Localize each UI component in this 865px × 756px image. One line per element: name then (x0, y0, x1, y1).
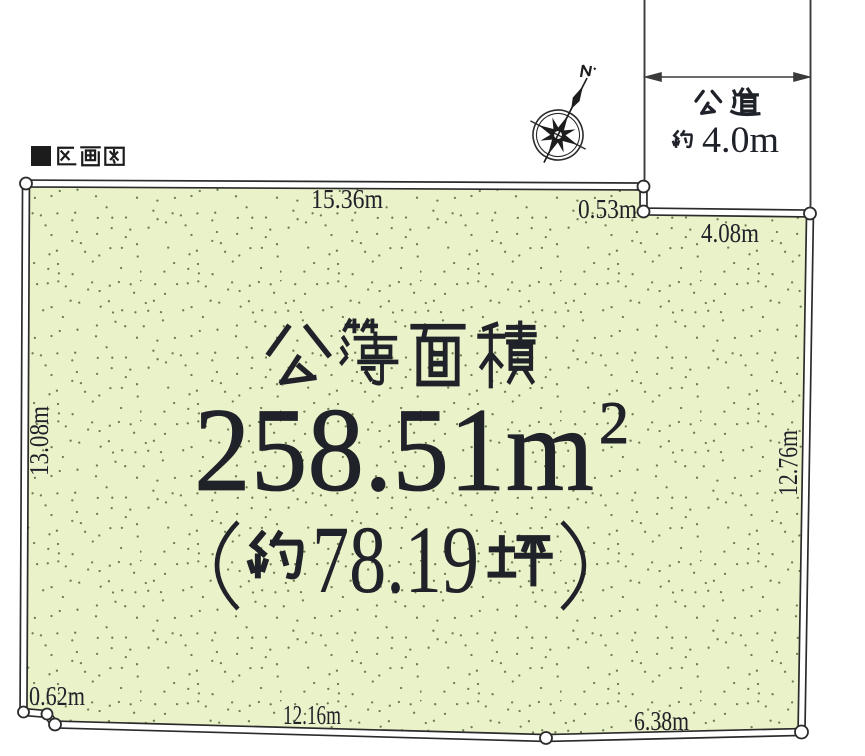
svg-text:4.08m: 4.08m (701, 218, 759, 248)
svg-text:0.62m: 0.62m (29, 681, 85, 711)
svg-text:78.19: 78.19 (312, 506, 479, 613)
svg-text:13.08m: 13.08m (24, 406, 54, 476)
svg-text:6.38m: 6.38m (634, 706, 689, 736)
svg-text:12.76m: 12.76m (773, 430, 803, 496)
svg-text:15.36m: 15.36m (311, 184, 383, 214)
svg-text:258.51m: 258.51m (194, 383, 594, 516)
svg-text:2: 2 (599, 390, 629, 456)
svg-text:0.53m: 0.53m (578, 194, 637, 224)
svg-text:4.0m: 4.0m (702, 120, 779, 161)
svg-text:12.16m: 12.16m (283, 700, 341, 730)
